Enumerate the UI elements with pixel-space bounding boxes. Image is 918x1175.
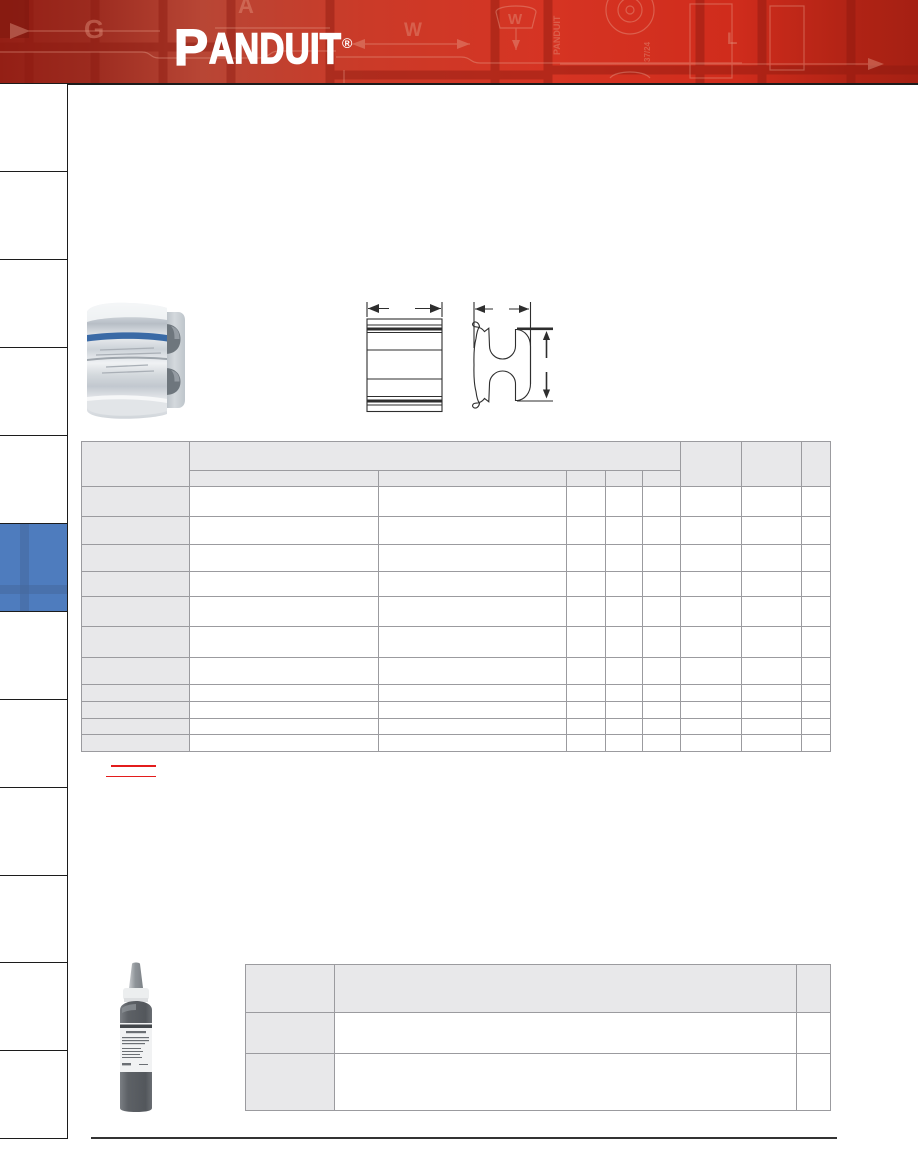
svg-text:L: L (727, 29, 737, 48)
svg-text:PANDUIT: PANDUIT (552, 15, 562, 55)
svg-text:37/24: 37/24 (643, 41, 652, 62)
svg-text:G: G (84, 14, 104, 44)
svg-text:W: W (404, 20, 422, 41)
svg-text:A: A (238, 0, 254, 18)
svg-text:W: W (508, 11, 523, 28)
